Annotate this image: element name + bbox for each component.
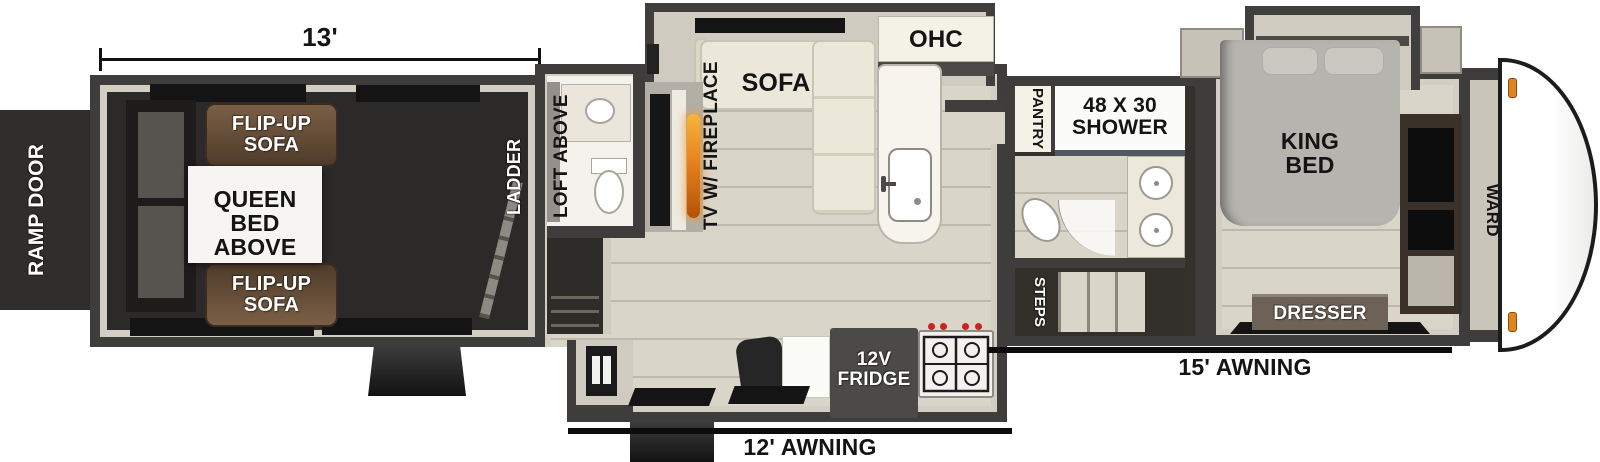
bath-vanity [1127, 156, 1185, 258]
fridge: 12V FRIDGE [830, 328, 918, 418]
overhead-cabinet: OHC [878, 16, 994, 62]
stair-tread [551, 296, 599, 299]
entry-door [586, 346, 617, 396]
stove-grate-icon [922, 335, 990, 393]
slideout-corner-right [1420, 26, 1462, 74]
fridge-label: 12V FRIDGE [834, 350, 914, 390]
wardrobe-shelf [1408, 256, 1454, 306]
tv-fireplace-label: TV W/ FIREPLACE [702, 112, 748, 230]
awning-15-label: 15' AWNING [1120, 356, 1370, 380]
dresser-label: DRESSER [1260, 304, 1380, 324]
pillow-icon [1324, 47, 1384, 75]
garage-window-top-right [356, 85, 480, 102]
queen-bed-above-label: QUEEN BED ABOVE [190, 188, 320, 260]
steps-area: STEPS [1015, 268, 1185, 336]
floor-mat [628, 388, 716, 406]
front-cap [1498, 58, 1598, 352]
sink-drain [914, 198, 921, 205]
entry-door-window-left [592, 356, 600, 384]
half-bath-wall-bottom [547, 226, 645, 238]
half-bath-toilet-icon [594, 170, 624, 214]
stair-tread [551, 310, 599, 313]
flip-up-sofa-top-label: FLIP-UP SOFA [215, 114, 328, 156]
burner-knob-icon [940, 323, 947, 330]
stair-tread [551, 324, 599, 327]
loft-above-label: LOFT ABOVE [552, 84, 578, 228]
garage-window-bottom-right [322, 318, 472, 335]
loft-stairwell [547, 238, 603, 334]
dimension-tick-left [99, 48, 102, 71]
wardrobe-unit [1400, 114, 1462, 314]
garage-dimension-label: 13' [270, 24, 370, 51]
rv-floorplan: 13' RAMP DOOR FLIP-UP SOFA FLIP-UP SOFA … [0, 0, 1600, 462]
flip-up-sofa-bottom-label: FLIP-UP SOFA [215, 274, 328, 316]
flip-up-sofa-top: FLIP-UP SOFA [205, 103, 338, 167]
half-bath-wall-right [633, 64, 645, 234]
dresser: DRESSER [1252, 294, 1388, 330]
king-bed-label: KING BED [1275, 130, 1345, 178]
burner-knob-icon [962, 323, 969, 330]
steps-label: STEPS [1027, 270, 1047, 334]
awning-12-label: 12' AWNING [690, 436, 930, 460]
galley-counter-back [945, 100, 1005, 112]
burner-knob-icon [975, 323, 982, 330]
sofa-label: SOFA [726, 70, 826, 96]
ramp-door-label: RAMP DOOR [26, 120, 66, 300]
pantry-label: PANTRY [1023, 88, 1045, 150]
entry-door-window-right [603, 356, 611, 384]
shower-label: 48 X 30 SHOWER [1065, 95, 1175, 139]
dimension-line [100, 58, 540, 61]
garage-side-window [126, 100, 196, 312]
burner-knob-icon [928, 323, 935, 330]
tv-panel [1408, 210, 1454, 250]
sink-drain [1154, 181, 1159, 186]
pantry: PANTRY [1015, 86, 1053, 152]
flip-up-sofa-bottom: FLIP-UP SOFA [205, 263, 338, 327]
steps-treads [1058, 272, 1145, 332]
pillow-icon [1262, 47, 1318, 75]
garage-entry-step [368, 346, 466, 396]
vanity-sink-icon [1139, 213, 1173, 247]
sink-drain [1154, 228, 1159, 233]
half-bath-sink-icon [585, 98, 615, 124]
garage-side-window-pane-top [138, 112, 184, 198]
stove [918, 330, 994, 398]
marker-light-icon [1508, 78, 1517, 98]
chair [735, 335, 788, 393]
flame-icon [687, 114, 700, 218]
stairwell-lining [603, 238, 611, 334]
galley-counter [945, 100, 1005, 144]
bath-steps-wall [1015, 258, 1185, 268]
ladder-label: LADDER [505, 92, 535, 262]
overhead-cabinet-label: OHC [879, 28, 993, 53]
vanity-sink-icon [1139, 166, 1173, 200]
tv-panel [1408, 128, 1454, 202]
shower: 48 X 30 SHOWER [1055, 86, 1185, 152]
floor-mat [728, 386, 810, 404]
awning-15-bar [988, 347, 1452, 353]
sofa-body [812, 40, 876, 215]
faucet-spout [884, 182, 896, 186]
king-bed: KING BED [1220, 40, 1400, 226]
step-divider [1115, 272, 1118, 332]
queen-bed-above: QUEEN BED ABOVE [188, 166, 322, 263]
living-notch [520, 347, 567, 432]
fireplace-mantel [672, 90, 686, 230]
garage-side-window-pane-bottom [138, 206, 184, 298]
step-divider [1087, 272, 1090, 332]
ramp-door: RAMP DOOR [0, 110, 92, 310]
tv-screen [650, 94, 670, 226]
slideout-window [695, 18, 845, 33]
slideout-side-window [647, 44, 659, 74]
marker-light-icon [1508, 312, 1517, 332]
